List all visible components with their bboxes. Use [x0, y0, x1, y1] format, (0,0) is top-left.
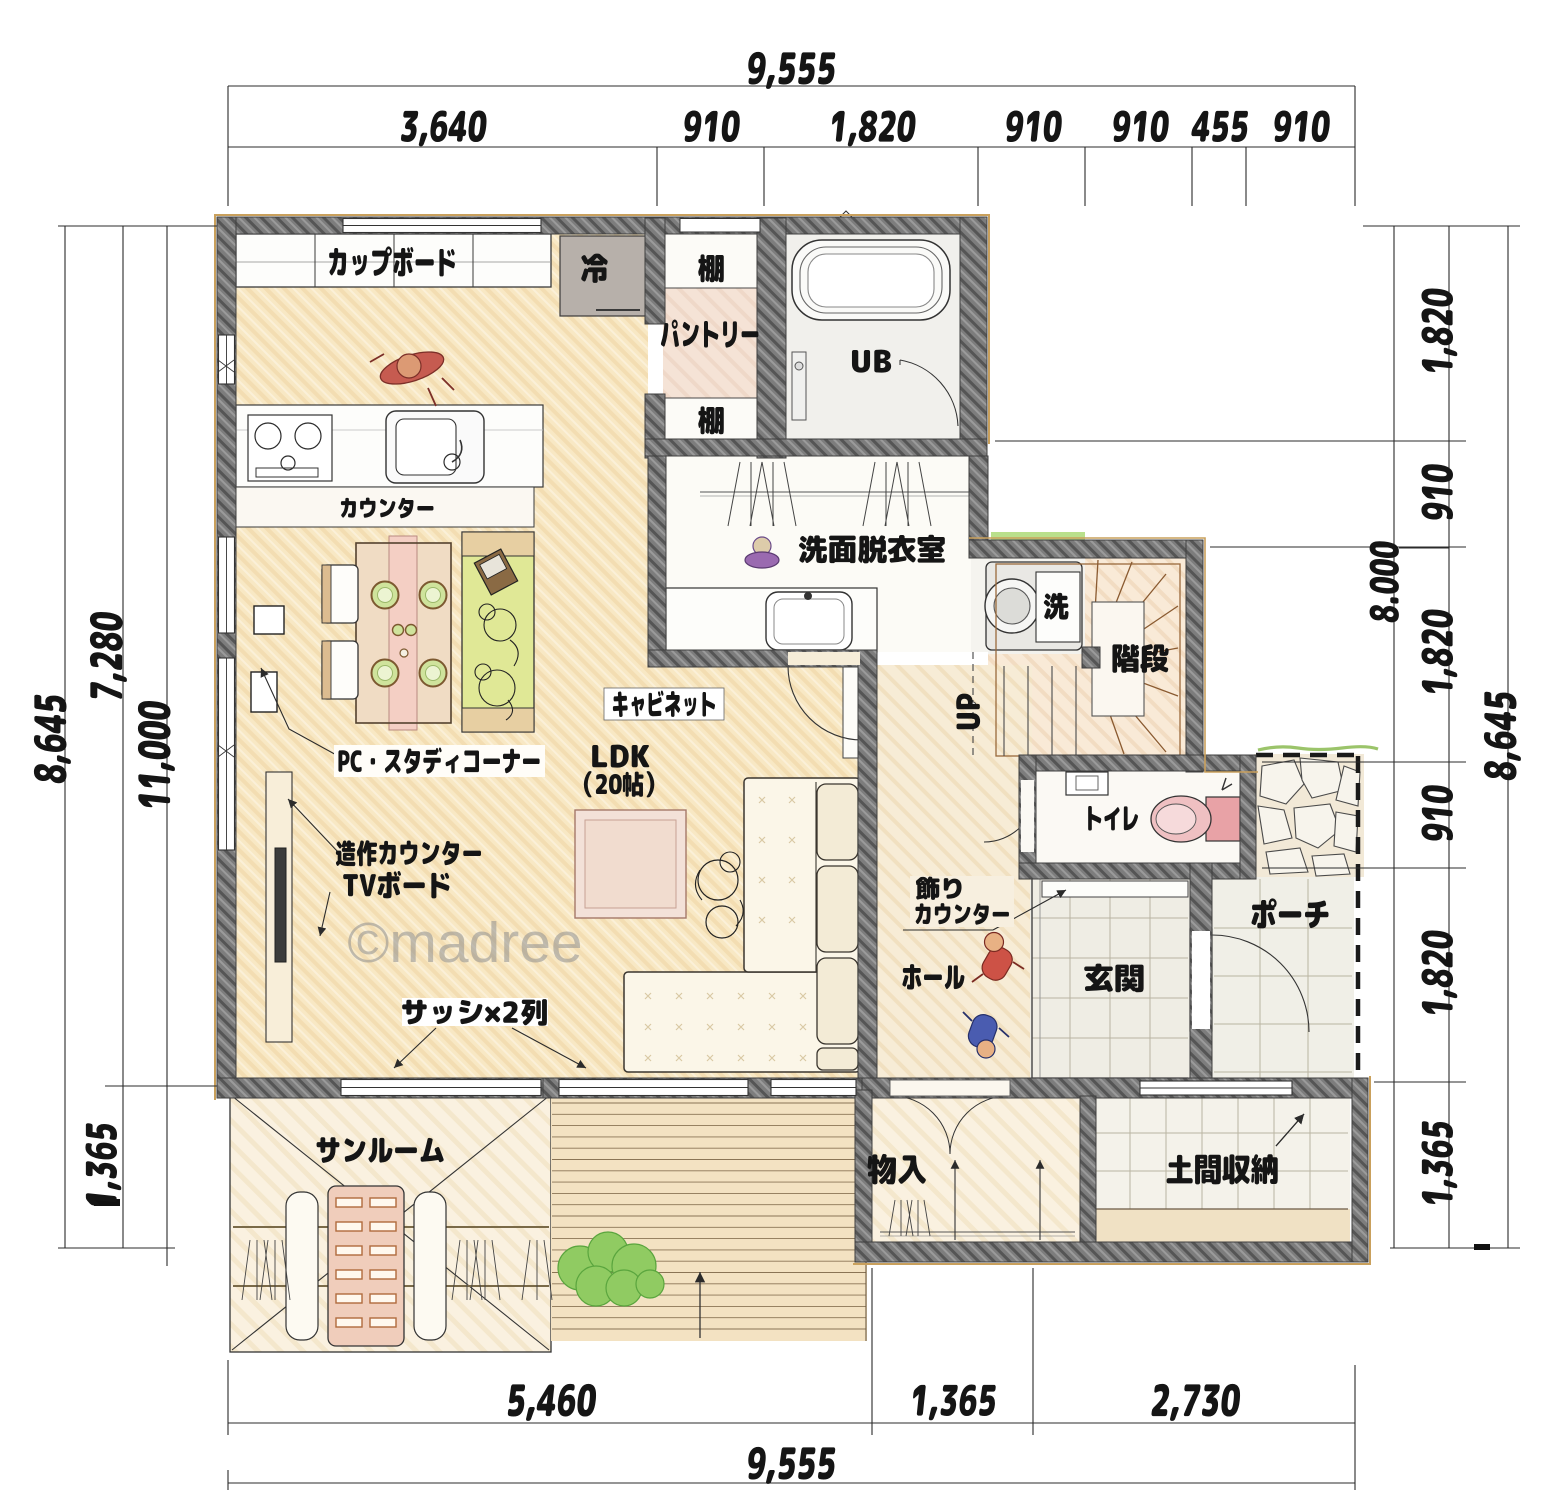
svg-text:©madree: ©madree: [347, 911, 582, 975]
